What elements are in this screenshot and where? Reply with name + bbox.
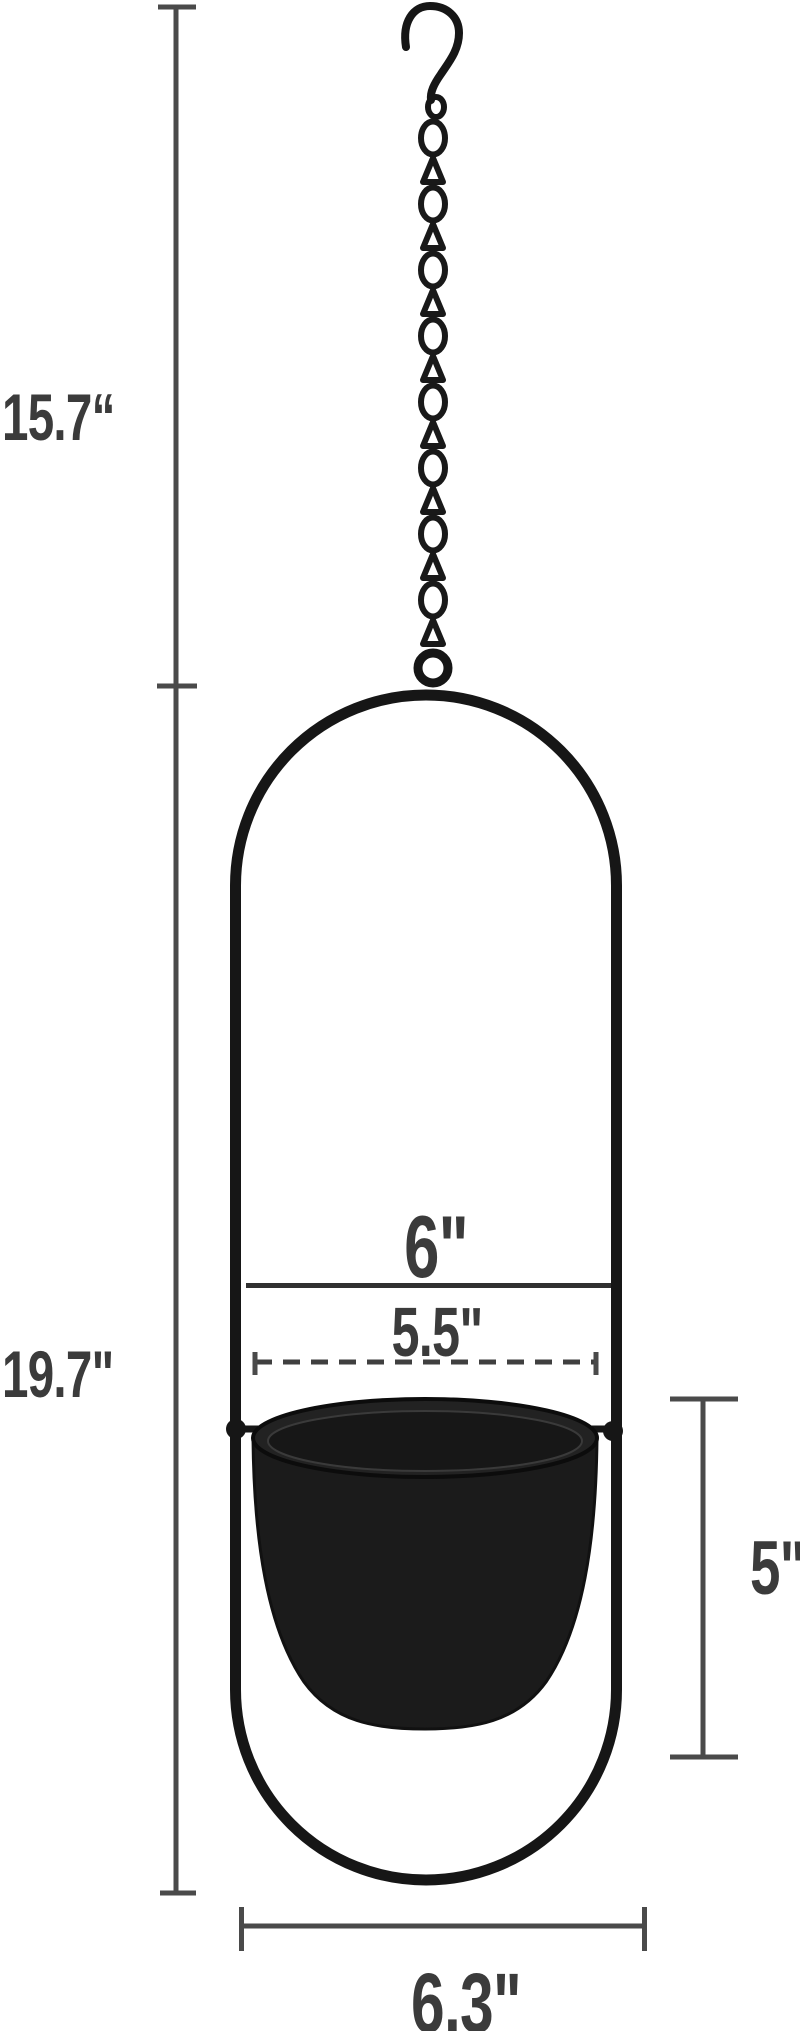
- chain-length-label: 15.7“: [2, 384, 115, 450]
- chain-link: [421, 452, 445, 485]
- chain-link: [421, 386, 445, 419]
- total-height-label: 19.7": [2, 1341, 113, 1407]
- chain-link: [423, 290, 443, 314]
- attachment-knob-left: [226, 1419, 246, 1439]
- chain-link: [421, 320, 445, 353]
- chain-link: [421, 188, 445, 221]
- pot-bowl: [253, 1438, 597, 1729]
- chain-link: [423, 554, 443, 578]
- hook-eye: [428, 97, 444, 117]
- chain-link: [423, 422, 443, 446]
- planter-pot: [253, 1399, 597, 1729]
- attachment-knob-right: [603, 1421, 623, 1441]
- frame-width-label: 6": [357, 1203, 515, 1291]
- chain-link: [423, 620, 443, 644]
- pot-opening: [268, 1411, 582, 1471]
- chain-link: [423, 356, 443, 380]
- ceiling-hook: [405, 6, 459, 117]
- chain-link: [421, 584, 445, 617]
- hook-curve: [405, 6, 459, 100]
- bottom-width-dimension-lines: [241, 1907, 646, 1951]
- chain-link: [421, 254, 445, 287]
- bottom-width-label: 6.3": [387, 1961, 545, 2031]
- product-dimension-diagram: 15.7“ 19.7" 6" 5.5" 5" 6.3": [0, 0, 800, 2031]
- pot-diameter-label: 5.5": [358, 1297, 516, 1367]
- chain-link: [421, 518, 445, 551]
- pot-height-dimension-lines: [670, 1399, 738, 1757]
- hanging-chain: [421, 122, 445, 645]
- height-dimension-lines: [157, 7, 197, 1893]
- pot-height-label: 5": [750, 1531, 800, 1607]
- planter-illustration: [0, 0, 800, 2031]
- chain-link: [423, 488, 443, 512]
- chain-link: [423, 158, 443, 182]
- chain-link: [421, 122, 445, 155]
- frame-top-ring: [418, 653, 448, 683]
- chain-link: [423, 224, 443, 248]
